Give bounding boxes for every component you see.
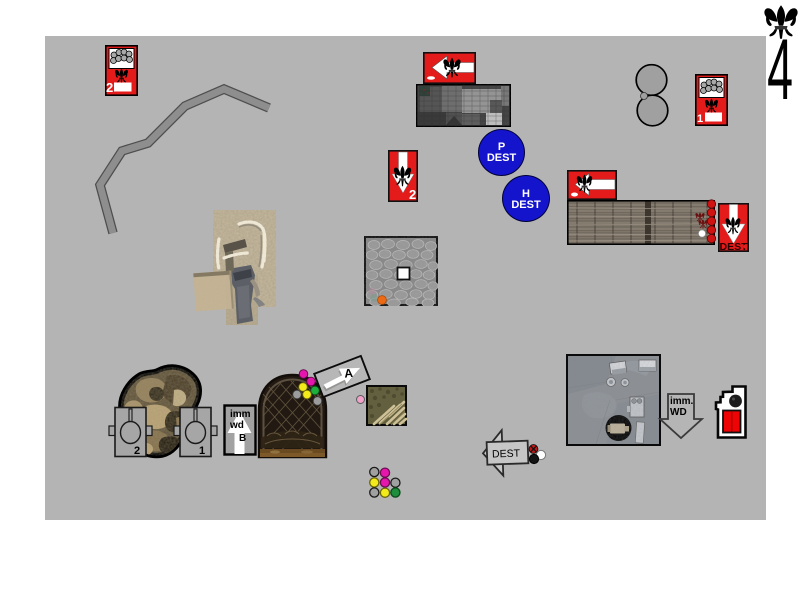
svg-text:2: 2	[106, 80, 113, 95]
svg-text:WD: WD	[670, 407, 687, 418]
svg-text:imm: imm	[230, 409, 251, 420]
svg-text:1: 1	[697, 113, 703, 125]
svg-text:DEST: DEST	[492, 447, 521, 460]
svg-text:2: 2	[409, 187, 416, 202]
svg-text:A: A	[344, 366, 354, 381]
svg-text:1: 1	[199, 445, 205, 457]
svg-text:imm.: imm.	[670, 396, 694, 407]
svg-text:B: B	[239, 433, 246, 444]
svg-text:2: 2	[134, 445, 140, 457]
svg-text:wd: wd	[229, 420, 244, 431]
